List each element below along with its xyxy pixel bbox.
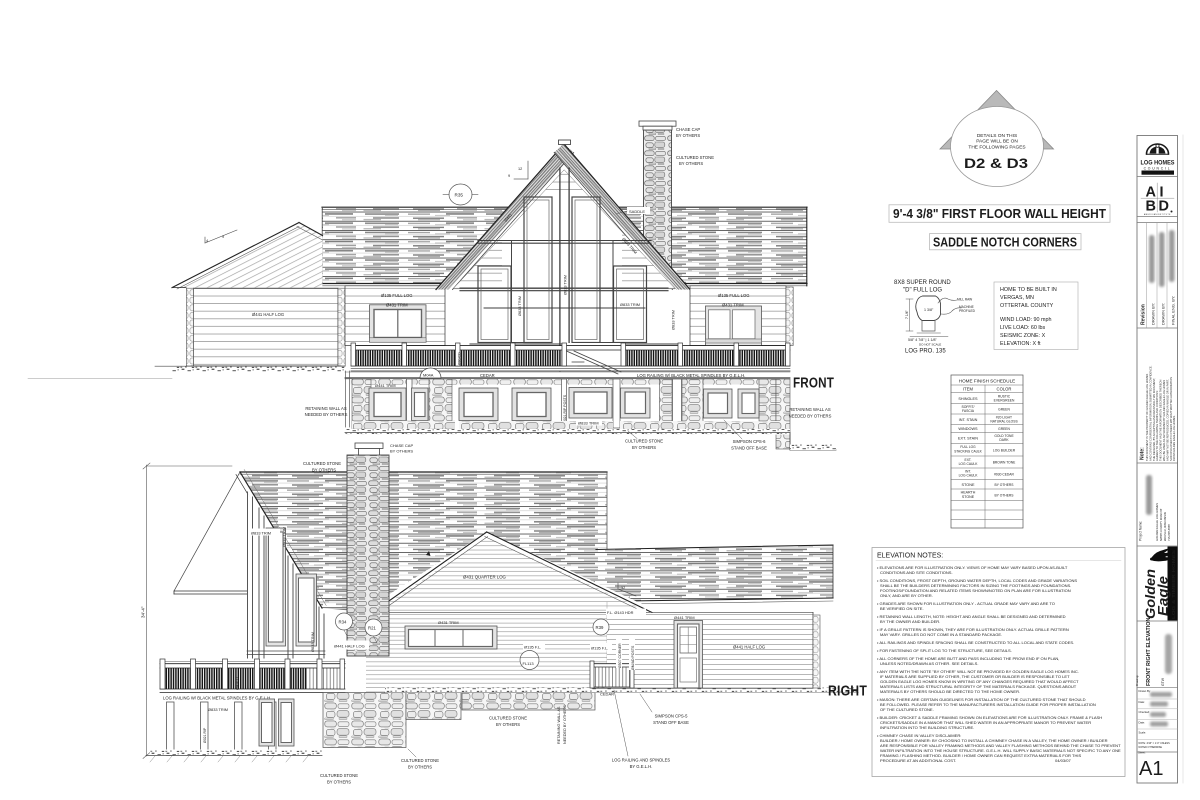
svg-text:Ø833 TRIM: Ø833 TRIM: [578, 421, 599, 426]
svg-text:LOG BUILDER: LOG BUILDER: [993, 448, 1016, 452]
svg-text:Sheet:: Sheet:: [1138, 751, 1146, 755]
svg-text:WAUSAU, WISCONSIN: WAUSAU, WISCONSIN: [1163, 512, 1167, 541]
svg-text:Project Name:: Project Name:: [1139, 521, 1143, 541]
svg-text:CULTURED STONE: CULTURED STONE: [401, 758, 439, 763]
svg-text:CEDAR: CEDAR: [480, 373, 495, 378]
svg-text:FRONT RIGHT ELEVATION: FRONT RIGHT ELEVATION: [1146, 618, 1152, 686]
svg-text:34'-4": 34'-4": [141, 606, 146, 618]
svg-text:SIMPSON CPS-5: SIMPSON CPS-5: [655, 714, 688, 719]
svg-text:R34: R34: [339, 620, 347, 625]
svg-text:• ALL RAILINGS AND SPINDLE SPA: • ALL RAILINGS AND SPINDLE SPACING SHALL…: [877, 640, 1074, 645]
svg-text:Ø135 F.L.: Ø135 F.L.: [524, 645, 541, 650]
svg-text:CULTURED STONE: CULTURED STONE: [303, 461, 341, 466]
svg-text:STAND OFF BASE: STAND OFF BASE: [653, 720, 689, 725]
svg-text:RETAINING WALL AS: RETAINING WALL AS: [557, 706, 561, 744]
svg-text:RETAINING WALL AS: RETAINING WALL AS: [305, 406, 346, 411]
svg-text:Ø135 FULL LOG: Ø135 FULL LOG: [718, 293, 750, 298]
svg-text:Ø90/CD: Ø90/CD: [458, 352, 462, 365]
svg-text:Ø431 TRIM: Ø431 TRIM: [386, 303, 408, 308]
svg-text:INFILTRATION INTO THE BUILDING: INFILTRATION INTO THE BUILDING STRUCTURE…: [880, 725, 974, 730]
svg-text:NOTED OTHERWISE: NOTED OTHERWISE: [1139, 746, 1163, 749]
svg-text:Checked:: Checked:: [1139, 710, 1151, 714]
svg-text:ØM/AD POSTS: ØM/AD POSTS: [631, 645, 635, 670]
svg-text:OF THE CULTURED STONE.: OF THE CULTURED STONE.: [880, 707, 934, 712]
svg-text:BROWN TONE: BROWN TONE: [993, 461, 1016, 465]
svg-text:M04A: M04A: [423, 373, 434, 378]
svg-text:VERGAS, MN: VERGAS, MN: [1000, 295, 1034, 301]
svg-text:OTTERTAIL COUNTY: OTTERTAIL COUNTY: [1000, 303, 1054, 309]
svg-text:9'-4 3/8" FIRST FLOOR WALL HEI: 9'-4 3/8" FIRST FLOOR WALL HEIGHT: [893, 206, 1106, 221]
svg-text:Ø431 TRIM: Ø431 TRIM: [722, 303, 744, 308]
svg-text:EXT. STAIN: EXT. STAIN: [958, 437, 978, 441]
svg-text:BY OTHERS: BY OTHERS: [632, 445, 656, 450]
svg-text:LOG RAILING W/ BLACK METAL SPI: LOG RAILING W/ BLACK METAL SPINDLES BY G…: [163, 696, 271, 701]
svg-text:• FOR FASTENING OF SPLIT LOG T: • FOR FASTENING OF SPLIT LOG TO THE STRU…: [877, 648, 1012, 653]
svg-text:8X8 SUPER ROUND: 8X8 SUPER ROUND: [894, 280, 951, 286]
svg-text:BE VERIFIED ON SITE.: BE VERIFIED ON SITE.: [880, 606, 924, 611]
svg-text:AGREES TO THE FOLLOWING TERMS: AGREES TO THE FOLLOWING TERMS AND CONDIT…: [1155, 390, 1159, 461]
svg-text:Ø135 F.L.: Ø135 F.L.: [591, 646, 608, 651]
svg-text:ELEVATION NOTES:: ELEVATION NOTES:: [877, 553, 943, 560]
svg-text:Revision: Revision: [1141, 304, 1147, 325]
svg-text:BY OTHERS: BY OTHERS: [496, 722, 520, 727]
svg-text:FL113: FL113: [523, 661, 535, 666]
svg-text:GREEN: GREEN: [998, 427, 1010, 431]
svg-text:9: 9: [222, 235, 224, 239]
svg-text:CHASE CAP: CHASE CAP: [676, 127, 700, 132]
svg-text:ONLY, AND ARE BY OTHER.: ONLY, AND ARE BY OTHER.: [880, 593, 933, 598]
svg-text:Ø833 TRIM: Ø833 TRIM: [620, 302, 640, 307]
svg-text:STAND OFF BASE: STAND OFF BASE: [731, 446, 767, 451]
svg-text:PAGE WILL BE ON: PAGE WILL BE ON: [976, 139, 1018, 145]
svg-text:THIS DOCUMENT IS THE PROPERTY: THIS DOCUMENT IS THE PROPERTY OF GOLDEN …: [1145, 373, 1149, 461]
svg-text:FRONT: FRONT: [793, 376, 834, 392]
svg-text:Ø833 TRIM: Ø833 TRIM: [282, 527, 287, 547]
svg-text:Ø441 HALF LOG: Ø441 HALF LOG: [733, 645, 765, 650]
svg-text:BY THE OWNER AND BUILDER.: BY THE OWNER AND BUILDER.: [880, 619, 940, 624]
svg-text:HEARTH: HEARTH: [961, 491, 976, 495]
svg-text:1 3/8": 1 3/8": [924, 308, 934, 312]
svg-text:LOG RAILING W/ BLACK METAL SPI: LOG RAILING W/ BLACK METAL SPINDLES BY G…: [637, 373, 745, 378]
svg-text:Ø021 RIP: Ø021 RIP: [203, 727, 207, 743]
svg-text:7 1/4": 7 1/4": [905, 309, 909, 319]
svg-text:#930 CEDAR: #930 CEDAR: [994, 472, 1014, 476]
svg-text:LOG & TIMBER HOMES: LOG & TIMBER HOMES: [1171, 550, 1176, 619]
svg-text:Ø441 HALF LOG: Ø441 HALF LOG: [252, 312, 284, 317]
svg-text:COUNCIL: COUNCIL: [1144, 166, 1172, 170]
svg-text:NATURAL GLOSS: NATURAL GLOSS: [990, 419, 1018, 423]
svg-text:N#### COUNTY ROAD ##: N#### COUNTY ROAD ##: [1159, 508, 1163, 541]
svg-text:SADDLE NOTCH CORNERS: SADDLE NOTCH CORNERS: [933, 235, 1077, 249]
svg-text:LOG RAILING AND SPINDLES: LOG RAILING AND SPINDLES: [612, 758, 671, 763]
svg-text:Ø441 TRIM: Ø441 TRIM: [375, 383, 396, 388]
svg-text:Ø441 HALF LOG: Ø441 HALF LOG: [334, 644, 365, 649]
svg-text:Ø833 TRIM: Ø833 TRIM: [517, 296, 522, 316]
svg-text:AND MAY NOT BE REPRODUCED, COP: AND MAY NOT BE REPRODUCED, COPIED IN WHO…: [1165, 379, 1169, 461]
svg-text:ITEM: ITEM: [963, 387, 974, 392]
svg-text:STONE: STONE: [961, 483, 974, 487]
svg-text:R35: R35: [455, 193, 464, 198]
svg-text:UNLESS NOTED/DRAWN AS OTHER. S: UNLESS NOTED/DRAWN AS OTHER. SEE DETAILS…: [880, 661, 979, 666]
svg-text:SEISMIC ZONE: X: SEISMIC ZONE: X: [1000, 333, 1046, 339]
svg-text:GREEN: GREEN: [998, 408, 1010, 412]
svg-text:NEEDED BY OTHERS: NEEDED BY OTHERS: [563, 705, 567, 744]
svg-text:Ø833 TRIM: Ø833 TRIM: [251, 531, 271, 536]
svg-text:DETAILS ON THIS: DETAILS ON THIS: [977, 133, 1017, 139]
svg-text:HOME TO BE BUILT IN: HOME TO BE BUILT IN: [1000, 287, 1057, 293]
svg-text:"D" FULL LOG: "D" FULL LOG: [903, 288, 942, 294]
svg-text:Ø833 TRIM: Ø833 TRIM: [208, 707, 228, 712]
svg-text:04/03/07: 04/03/07: [1055, 758, 1072, 763]
svg-text:BY OTHERS: BY OTHERS: [408, 765, 432, 770]
svg-text:MATERIALS BY OTHERS SHOULD BE: MATERIALS BY OTHERS SHOULD BE DIRECTED T…: [880, 689, 1020, 694]
svg-text:Ø833 TRIM: Ø833 TRIM: [563, 275, 568, 295]
svg-text:715-###-####: 715-###-####: [1167, 524, 1171, 541]
svg-text:DRAWN BY:: DRAWN BY:: [1151, 303, 1156, 325]
svg-text:MAY VARY. GRILLES DO NOT COME: MAY VARY. GRILLES DO NOT COME IN A STAND…: [880, 632, 1002, 637]
svg-text:12: 12: [518, 167, 522, 171]
svg-text:R21: R21: [368, 626, 376, 631]
svg-text:Note:: Note:: [1140, 447, 1146, 460]
svg-text:Ø833 TRIM: Ø833 TRIM: [310, 632, 315, 652]
svg-text:4: 4: [206, 239, 208, 243]
svg-text:D2 & D3: D2 & D3: [964, 155, 1028, 171]
svg-text:NOTE: 3/16" = 1'-0" UNLESS: NOTE: 3/16" = 1'-0" UNLESS: [1139, 742, 1171, 745]
svg-text:Ø021 RIP POSTS: Ø021 RIP POSTS: [563, 394, 567, 423]
svg-text:FINAL ENG. BY:: FINAL ENG. BY:: [1171, 296, 1176, 325]
svg-text:BY OTHERS: BY OTHERS: [327, 780, 351, 785]
svg-text:Date:: Date:: [1139, 721, 1146, 725]
svg-text:BY OTHERS: BY OTHERS: [390, 449, 413, 454]
svg-text:WIND LOAD: 90 mph: WIND LOAD: 90 mph: [1000, 317, 1052, 323]
svg-text:FASCIA: FASCIA: [962, 409, 975, 413]
svg-text:NEEDED BY OTHERS: NEEDED BY OTHERS: [305, 412, 348, 417]
svg-text:AND CONTAINS CONFIDENTIAL INFO: AND CONTAINS CONFIDENTIAL INFORMATION SU…: [1148, 365, 1152, 461]
svg-text:HOME FINISH SCHEDULE: HOME FINISH SCHEDULE: [959, 378, 1015, 383]
svg-text:BY OTHERS: BY OTHERS: [995, 494, 1015, 498]
svg-text:Ø833 TRIM: Ø833 TRIM: [671, 310, 676, 330]
svg-text:Ø135 FULL LOG: Ø135 FULL LOG: [381, 293, 413, 298]
svg-text:COLOR: COLOR: [997, 387, 1012, 392]
svg-text:BY OTHERS: BY OTHERS: [995, 483, 1015, 487]
svg-text:CULTURED STONE: CULTURED STONE: [320, 773, 358, 778]
svg-text:EVERGREEN: EVERGREEN: [994, 398, 1015, 402]
svg-text:Ø441 TRIM: Ø441 TRIM: [674, 615, 695, 620]
svg-text:R39: R39: [596, 625, 604, 630]
svg-text:SADDLE: SADDLE: [629, 209, 645, 214]
svg-text:LOG PRO. 135: LOG PRO. 135: [905, 349, 946, 355]
svg-text:NEEDED BY OTHERS: NEEDED BY OTHERS: [789, 414, 832, 419]
svg-text:LIVE LOAD: 60 lbs: LIVE LOAD: 60 lbs: [1000, 325, 1046, 331]
svg-text:12: 12: [621, 586, 625, 590]
svg-text:Leaders in Excellence: Leaders in Excellence: [1143, 171, 1172, 175]
svg-text:Drawing:: Drawing:: [1135, 675, 1139, 686]
svg-text:BY G.E.L.H.: BY G.E.L.H.: [630, 764, 653, 769]
svg-text:Ø431 TRIM: Ø431 TRIM: [438, 620, 459, 625]
svg-text:F.L. Ø143 HDR: F.L. Ø143 HDR: [607, 610, 634, 615]
svg-text:CONDITIONS AND SITE CONDITIONS: CONDITIONS AND SITE CONDITIONS.: [880, 570, 953, 575]
svg-text:LOG CAULK: LOG CAULK: [959, 474, 979, 478]
svg-text:RIGHT: RIGHT: [828, 684, 867, 700]
svg-text:BY OTHERS: BY OTHERS: [679, 161, 703, 166]
svg-text:STONE: STONE: [962, 495, 975, 499]
svg-text:A1: A1: [1139, 758, 1163, 780]
svg-text:Ø90/CD: Ø90/CD: [236, 677, 240, 690]
svg-text:Drawn By:: Drawn By:: [1139, 689, 1152, 693]
svg-text:DARK: DARK: [999, 438, 1009, 442]
svg-text:D: D: [1159, 199, 1169, 215]
svg-text:SHINGLES: SHINGLES: [958, 397, 978, 401]
svg-text:CULTURED STONE: CULTURED STONE: [489, 716, 527, 721]
svg-text:DRAWN BY:: DRAWN BY:: [1161, 303, 1166, 325]
svg-text:GOLDEN EAGLE LOG HOMES: GOLDEN EAGLE LOG HOMES: [1155, 503, 1159, 541]
svg-text:THE FOLLOWING PAGES: THE FOLLOWING PAGES: [968, 144, 1025, 150]
svg-text:BY OTHERS: BY OTHERS: [676, 133, 700, 138]
svg-text:INT. STAIN: INT. STAIN: [959, 418, 978, 422]
svg-text:LOG CAULK: LOG CAULK: [959, 462, 979, 466]
svg-text:PROFILED: PROFILED: [959, 309, 976, 313]
svg-text:Ø507 CORNER: Ø507 CORNER: [618, 643, 622, 668]
svg-text:THIS DOCUMENT AND THE INFORMAT: THIS DOCUMENT AND THE INFORMATION DESCRI…: [1159, 380, 1163, 461]
svg-text:CHASE CAP: CHASE CAP: [390, 443, 413, 448]
svg-text:B: B: [1146, 199, 1156, 215]
svg-text:GTW: GTW: [1161, 677, 1165, 686]
svg-text:Eagle: Eagle: [1156, 575, 1171, 616]
svg-text:WILL BE USED AS AUTHORIZED BY: WILL BE USED AS AUTHORIZED BY GOLDEN EAG…: [1162, 380, 1166, 461]
svg-text:THE RECEIVER, BY ACCEPTING AND: THE RECEIVER, BY ACCEPTING AND RETAINING…: [1152, 378, 1156, 461]
svg-text:CEDAR: CEDAR: [600, 692, 614, 697]
svg-text:ELEVATION: X ft: ELEVATION: X ft: [1000, 341, 1041, 347]
svg-text:FROM GOLDEN EAGLE LOG HOMES.: FROM GOLDEN EAGLE LOG HOMES.: [1172, 415, 1176, 461]
svg-text:BY OTHERS: BY OTHERS: [312, 468, 336, 473]
svg-text:9: 9: [508, 174, 510, 178]
svg-text:A M E R I C A N I N S T I T U: A M E R I C A N I N S T I T U T E: [1144, 213, 1171, 216]
svg-text:Date:: Date:: [1139, 700, 1146, 704]
svg-text:Scale:: Scale:: [1139, 731, 1147, 735]
svg-text:SIMPSON CPS-6: SIMPSON CPS-6: [733, 439, 766, 444]
svg-text:MILL RAW: MILL RAW: [957, 298, 972, 302]
svg-text:Ø431 QUARTER LOG: Ø431 QUARTER LOG: [463, 575, 507, 580]
svg-text:CULTURED STONE: CULTURED STONE: [625, 439, 663, 444]
svg-text:CULTURED STONE: CULTURED STONE: [676, 155, 714, 160]
svg-text:PROCEDURE AT AN ADDITIONAL COS: PROCEDURE AT AN ADDITIONAL COST.: [880, 758, 956, 763]
svg-text:WINDOWS: WINDOWS: [958, 427, 978, 431]
svg-text:RETAINING WALL AS: RETAINING WALL AS: [789, 407, 830, 412]
svg-text:5/8" 4 7/8" | 1 1/8": 5/8" 4 7/8" | 1 1/8": [908, 338, 937, 342]
svg-text:STACKING CAULK: STACKING CAULK: [954, 449, 982, 453]
svg-text:DO NOT SCALE: DO NOT SCALE: [919, 342, 941, 346]
svg-text:NOR DISCLOSED TO OTHERS WITHOU: NOR DISCLOSED TO OTHERS WITHOUT WRITTEN …: [1169, 377, 1173, 461]
